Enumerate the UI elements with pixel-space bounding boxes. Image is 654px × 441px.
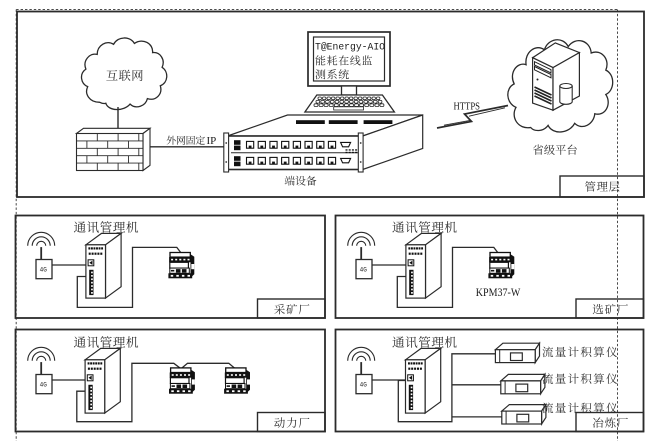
svg-text:4G: 4G xyxy=(40,381,48,388)
svg-text:4G: 4G xyxy=(360,381,368,388)
svg-text:KPM37-W: KPM37-W xyxy=(476,285,521,299)
svg-text:T@Energy-AIO: T@Energy-AIO xyxy=(315,42,385,54)
svg-text:HTTPS: HTTPS xyxy=(454,102,481,113)
svg-text:4G: 4G xyxy=(40,266,48,273)
svg-text:IP: IP xyxy=(207,135,217,147)
svg-text:4G: 4G xyxy=(360,266,368,273)
